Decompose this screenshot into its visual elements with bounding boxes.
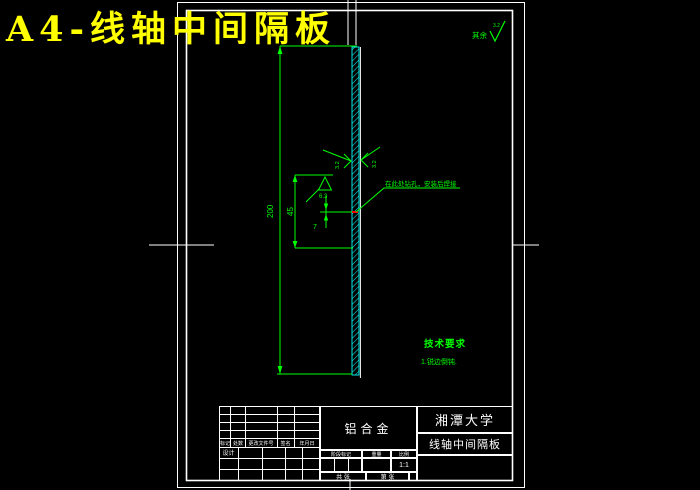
roughness-left-value: 3.2	[335, 161, 341, 169]
inner-dimension-text: 45	[286, 207, 295, 216]
roughness-triangle-value: 6.3	[319, 194, 328, 200]
sheet-number-cell: 第 张	[366, 472, 409, 481]
grid-line	[219, 447, 320, 448]
drawing-number-cell	[417, 455, 513, 481]
grid-line	[219, 438, 320, 439]
weight-cell	[362, 458, 391, 472]
spare-cell	[409, 472, 417, 481]
cad-canvas: 200 45 6.3 7 在此处钻孔，安装后焊接	[0, 0, 700, 490]
grid-line	[285, 447, 286, 481]
grid-line	[219, 458, 320, 459]
material-cell: 铝合金	[320, 406, 417, 450]
grid-line	[348, 458, 349, 472]
grid-line	[219, 414, 320, 415]
page-title: A4-线轴中间隔板	[6, 1, 336, 52]
part-name-cell: 线轴中间隔板	[417, 433, 513, 455]
grid-line	[334, 458, 335, 472]
weight-header: 重量	[362, 450, 391, 458]
grid-line	[262, 447, 263, 481]
tech-requirements-title: 技术要求	[424, 338, 466, 350]
grid-line	[302, 447, 303, 481]
grid-line	[230, 406, 231, 447]
hole-dimension	[320, 196, 353, 228]
roughness-right-value: 3.2	[372, 160, 378, 168]
designer-label: 设计	[219, 447, 238, 458]
leader-line	[356, 188, 460, 212]
grid-line	[219, 430, 320, 431]
surplus-label: 其余	[472, 30, 487, 40]
stage-mark-header: 阶段标记	[320, 450, 362, 458]
scale-value: 1:1	[391, 458, 417, 472]
scale-header: 比例	[391, 450, 417, 458]
hole-dimension-text: 7	[313, 224, 317, 231]
grid-line	[238, 447, 239, 481]
sheet-total-cell: 共 张	[320, 472, 366, 481]
leader-note-text: 在此处钻孔，安装后焊接	[385, 179, 457, 188]
grid-line	[219, 422, 320, 423]
tech-requirement-item: 1.锐边倒钝.	[421, 357, 457, 366]
height-dimension-text: 200	[266, 204, 275, 218]
grid-line	[219, 469, 320, 470]
organization-cell: 湘潭大学	[417, 406, 513, 433]
grid-line	[245, 406, 246, 447]
surplus-value: 3.2	[493, 23, 500, 29]
grid-line	[277, 406, 278, 447]
grid-line	[294, 406, 295, 447]
stage-mark-cell	[320, 458, 362, 472]
